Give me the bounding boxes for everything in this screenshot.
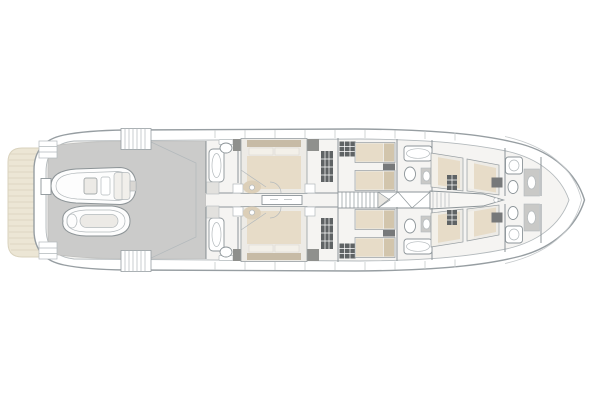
vip-closet — [321, 151, 333, 182]
twin-bed1-duvet — [356, 144, 383, 162]
bow-sink — [528, 176, 536, 189]
bath-sink — [423, 171, 430, 181]
bow-toilet — [508, 181, 518, 194]
twin-bed2-duvet — [356, 172, 383, 190]
corridor-dresser — [262, 196, 302, 205]
bathtub — [404, 146, 432, 161]
staircase — [338, 192, 430, 208]
vip-shower — [209, 149, 224, 182]
vip-bath-tile — [207, 182, 220, 194]
bath-toilet — [405, 167, 416, 181]
vip-nightstand-right — [305, 184, 315, 193]
vip-headboard — [247, 140, 301, 147]
vip-pillow-right — [275, 148, 299, 155]
tender-console — [84, 178, 97, 194]
fwd-bed1-pillow — [432, 154, 438, 188]
tender-garage — [41, 142, 206, 259]
corridor-end-fitting — [494, 198, 498, 202]
fwd-bed2-pillow — [468, 160, 474, 190]
transom-steps — [39, 141, 57, 158]
twin-locker — [340, 142, 356, 157]
tender-seat — [101, 177, 110, 195]
twin-nightstand — [383, 164, 395, 171]
twin-bed2-pillow — [384, 172, 394, 190]
yacht-floor-plan — [0, 0, 600, 400]
jet-ski-seat — [80, 215, 118, 228]
twin-bed1-pillow — [384, 144, 394, 162]
aft-corridor — [262, 196, 302, 205]
bow-shower — [506, 157, 523, 174]
deck-plan-svg — [0, 0, 600, 400]
boarding-platform — [121, 129, 151, 150]
vip-nightstand-left — [233, 184, 243, 193]
tender-engine — [130, 181, 136, 191]
vip-wardrobe-right — [307, 139, 319, 151]
vanity-sink — [250, 185, 255, 190]
tender-cradle — [41, 179, 51, 195]
vip-toilet — [220, 143, 232, 153]
jet-ski — [63, 206, 130, 236]
vip-pillow-left — [249, 148, 273, 155]
fwd-nightstand — [492, 178, 503, 188]
